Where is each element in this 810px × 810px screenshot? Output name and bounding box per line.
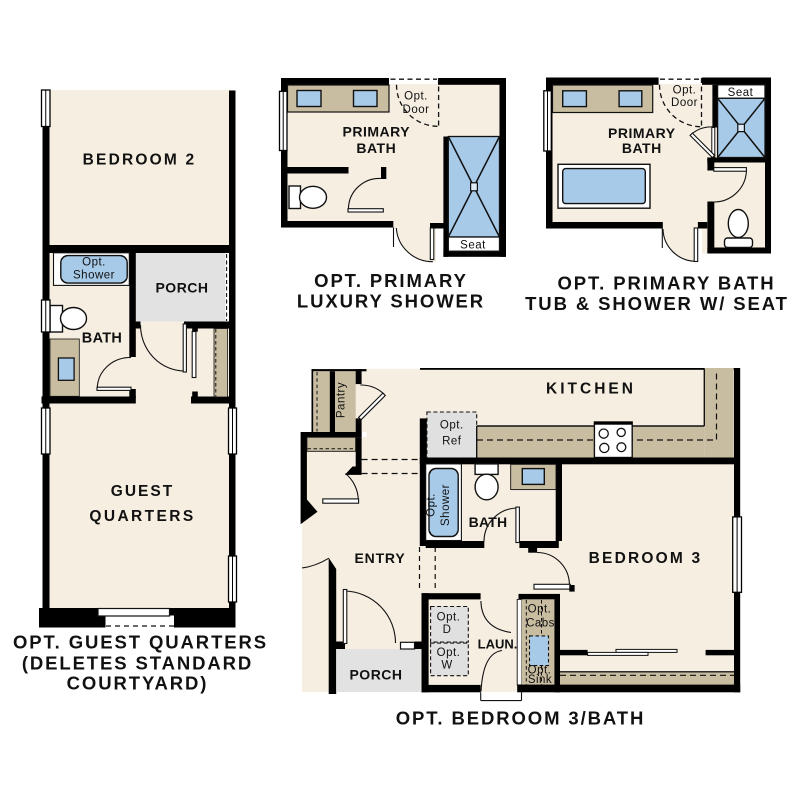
svg-text:COURTYARD): COURTYARD) (67, 672, 209, 693)
svg-text:BATH: BATH (622, 140, 662, 156)
svg-text:Seat: Seat (728, 87, 754, 99)
svg-text:BATH: BATH (82, 330, 122, 346)
svg-text:Sink: Sink (528, 674, 552, 686)
svg-text:BEDROOM 3: BEDROOM 3 (589, 550, 703, 567)
svg-text:D: D (443, 624, 452, 636)
svg-text:Opt.: Opt. (440, 420, 464, 432)
svg-text:OPT. PRIMARY BATH: OPT. PRIMARY BATH (558, 273, 776, 294)
svg-text:W: W (441, 659, 452, 671)
svg-text:PRIMARY: PRIMARY (343, 124, 411, 140)
svg-text:Opt.: Opt. (426, 493, 438, 517)
svg-text:TUB & SHOWER W/ SEAT: TUB & SHOWER W/ SEAT (525, 293, 789, 314)
svg-text:GUEST: GUEST (111, 483, 174, 500)
svg-text:BEDROOM 2: BEDROOM 2 (83, 152, 197, 169)
svg-text:(DELETES STANDARD: (DELETES STANDARD (22, 653, 253, 674)
svg-text:LUXURY SHOWER: LUXURY SHOWER (297, 291, 485, 312)
svg-text:Cabs: Cabs (526, 618, 555, 630)
svg-text:BATH: BATH (469, 514, 508, 530)
svg-text:LAUN.: LAUN. (478, 637, 518, 652)
svg-text:KITCHEN: KITCHEN (546, 381, 636, 398)
svg-text:Door: Door (403, 104, 430, 116)
svg-text:OPT. PRIMARY: OPT. PRIMARY (314, 270, 468, 291)
svg-text:PORCH: PORCH (349, 666, 402, 682)
svg-text:Pantry: Pantry (336, 382, 348, 418)
svg-text:OPT. BEDROOM 3/BATH: OPT. BEDROOM 3/BATH (396, 708, 646, 729)
svg-text:PRIMARY: PRIMARY (608, 125, 676, 141)
svg-text:PORCH: PORCH (155, 280, 208, 296)
svg-text:QUARTERS: QUARTERS (89, 508, 195, 525)
svg-text:Opt.: Opt. (404, 91, 428, 103)
svg-text:Opt.: Opt. (437, 612, 461, 624)
svg-text:Opt.: Opt. (673, 85, 697, 97)
svg-text:Opt.: Opt. (437, 647, 461, 659)
svg-text:ENTRY: ENTRY (355, 550, 406, 566)
svg-text:OPT. GUEST QUARTERS: OPT. GUEST QUARTERS (13, 632, 268, 653)
svg-text:Opt.: Opt. (528, 603, 552, 615)
svg-text:Seat: Seat (460, 240, 486, 252)
svg-text:Door: Door (671, 97, 698, 109)
svg-text:Shower: Shower (440, 484, 452, 526)
svg-text:Opt.: Opt. (82, 257, 106, 269)
svg-text:BATH: BATH (356, 140, 396, 156)
svg-text:Ref: Ref (442, 436, 462, 448)
svg-text:Shower: Shower (73, 270, 115, 282)
